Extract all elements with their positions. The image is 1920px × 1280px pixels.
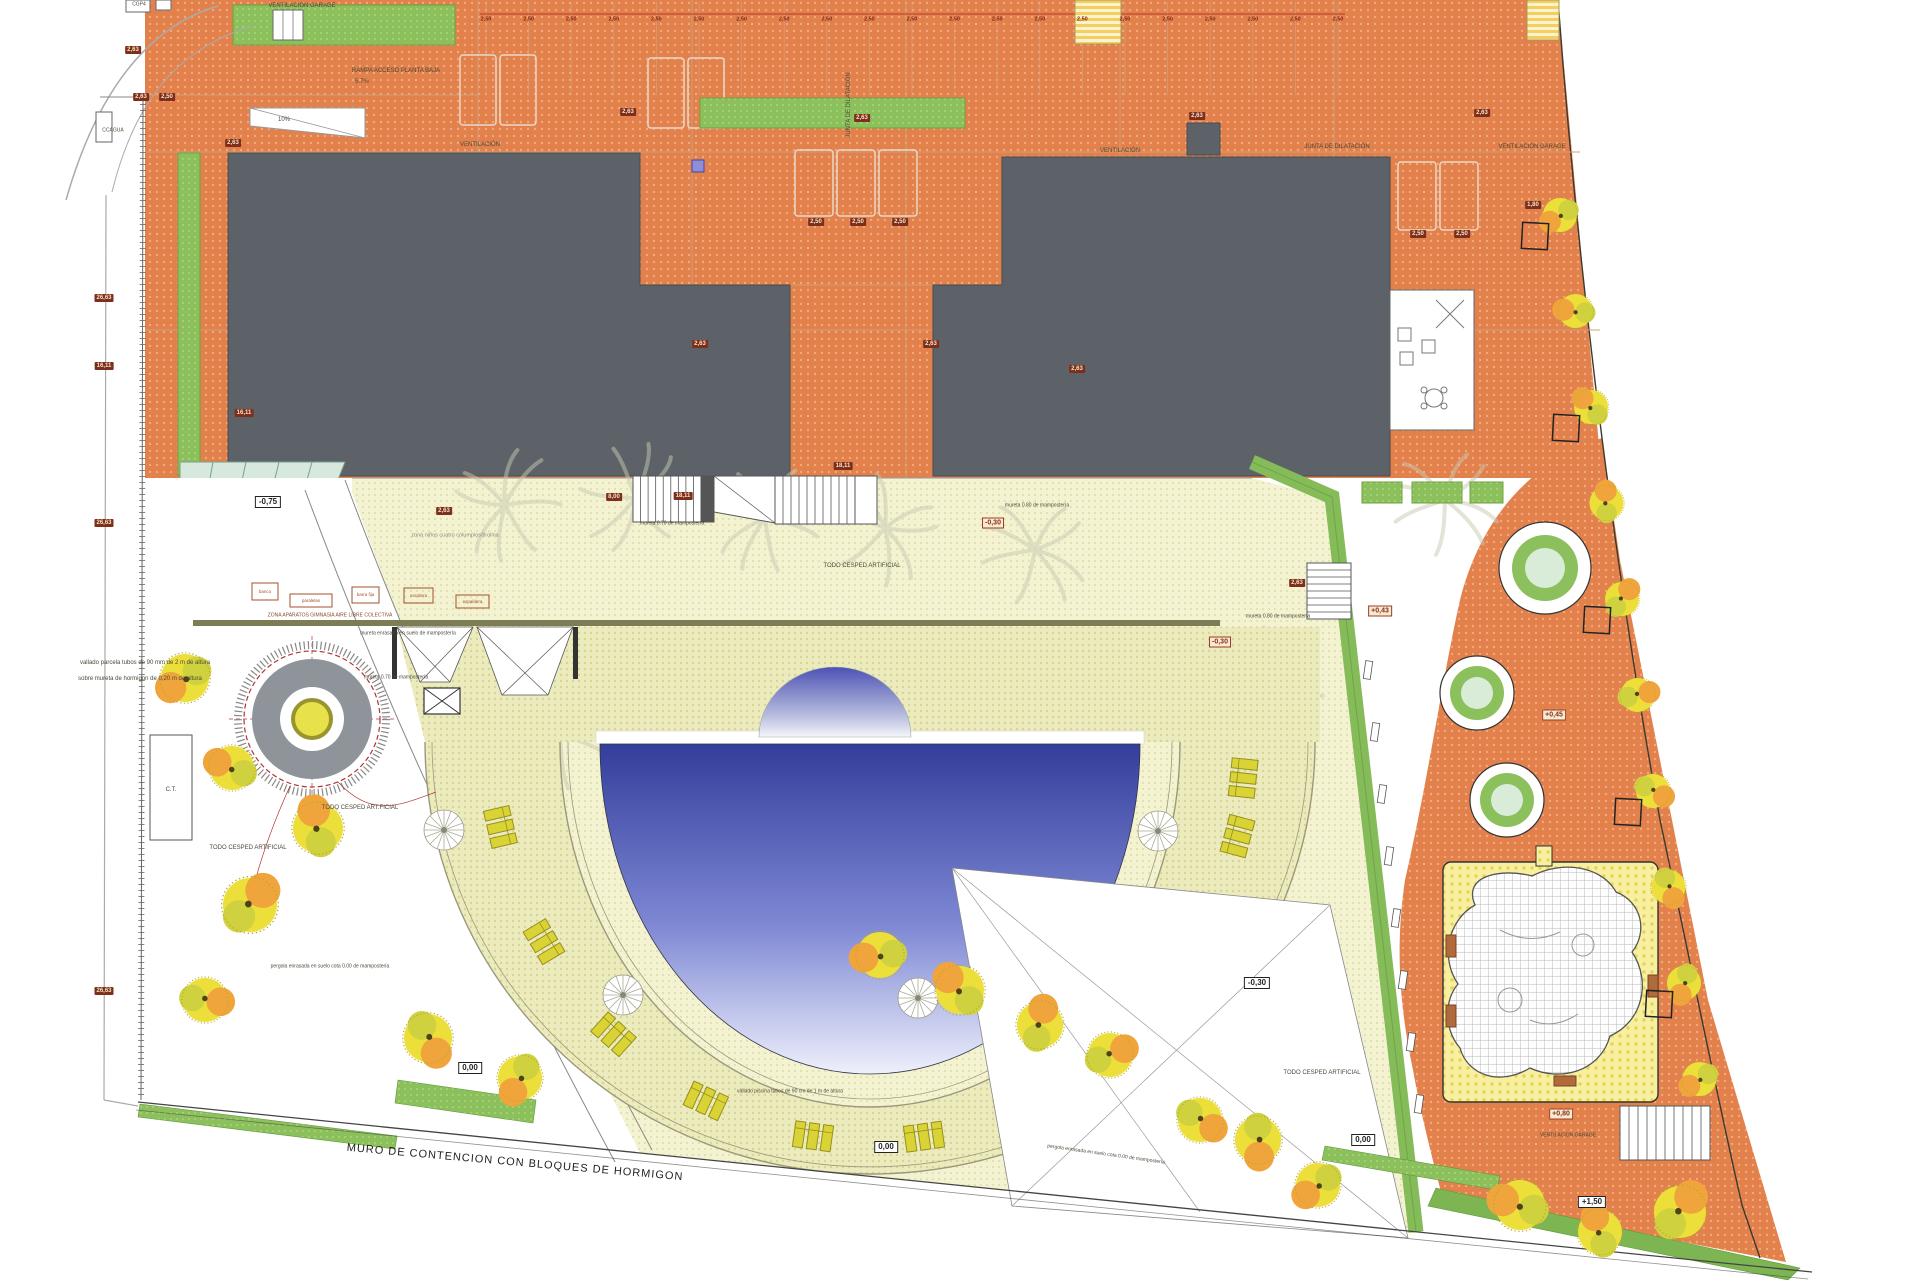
vent-shaft — [1187, 123, 1220, 155]
terrace-room — [1390, 290, 1474, 430]
building-right — [933, 157, 1390, 476]
playground — [1443, 846, 1658, 1102]
site-plan: VENTILACION GARAGERAMPA ACCESO PLANTA BA… — [0, 0, 1920, 1280]
transformer-ct — [150, 735, 192, 840]
site-plan-drawing — [0, 0, 1920, 1280]
